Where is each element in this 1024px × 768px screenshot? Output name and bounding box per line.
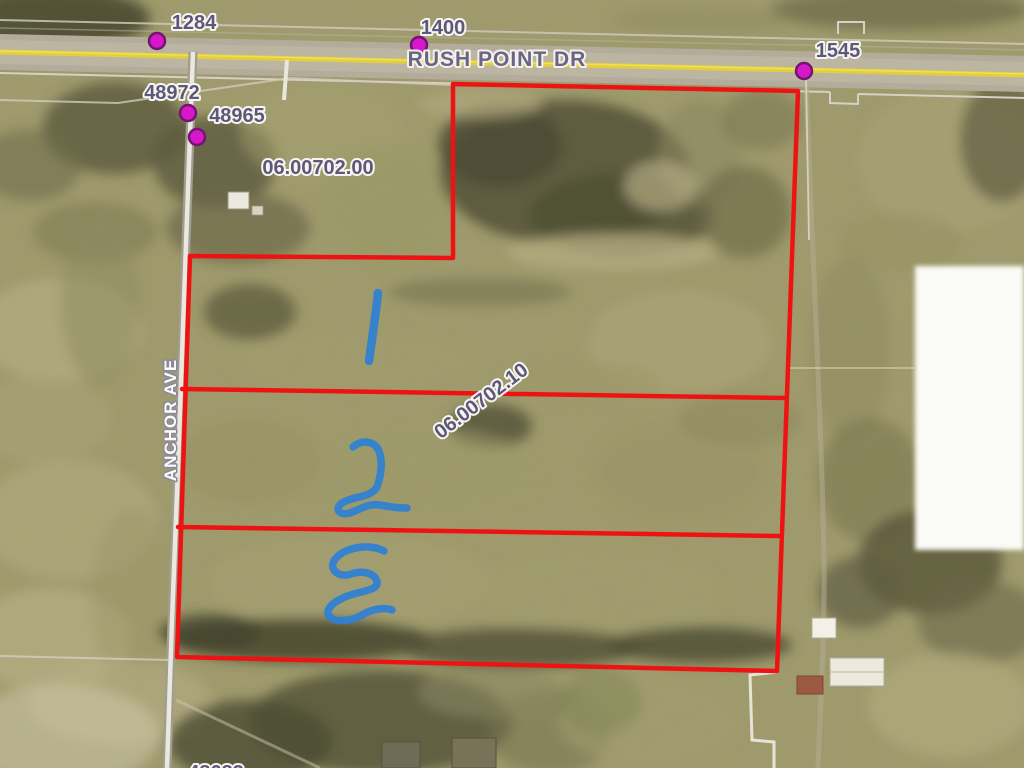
label-1545: 1545 (816, 40, 861, 62)
address-point-48965[interactable] (189, 129, 205, 145)
white-shed (812, 618, 836, 638)
address-point-48972[interactable] (180, 105, 196, 121)
imagery-gap (915, 266, 1024, 550)
building-south-2 (452, 738, 496, 768)
address-point-1284[interactable] (149, 33, 165, 49)
label-48965: 48965 (209, 105, 265, 127)
shed-48965 (252, 206, 263, 215)
red-shed (797, 676, 823, 694)
label-parcel-upper: 06.00702.00 (262, 157, 373, 179)
label-anchor-ave: ANCHOR AVE (161, 359, 180, 481)
house-48965 (228, 192, 249, 209)
map-canvas[interactable]: 1284 1400 1545 RUSH POINT DR 48972 48965… (0, 0, 1024, 768)
label-1284: 1284 (172, 12, 217, 34)
label-1400: 1400 (421, 17, 466, 39)
aerial-parcel-map[interactable]: 1284 1400 1545 RUSH POINT DR 48972 48965… (0, 0, 1024, 768)
building-south-1 (382, 742, 420, 768)
address-point-1545[interactable] (796, 63, 812, 79)
label-48683: 48683 (188, 762, 244, 768)
label-rush-point-dr: RUSH POINT DR (408, 48, 587, 71)
label-48972: 48972 (144, 82, 200, 104)
